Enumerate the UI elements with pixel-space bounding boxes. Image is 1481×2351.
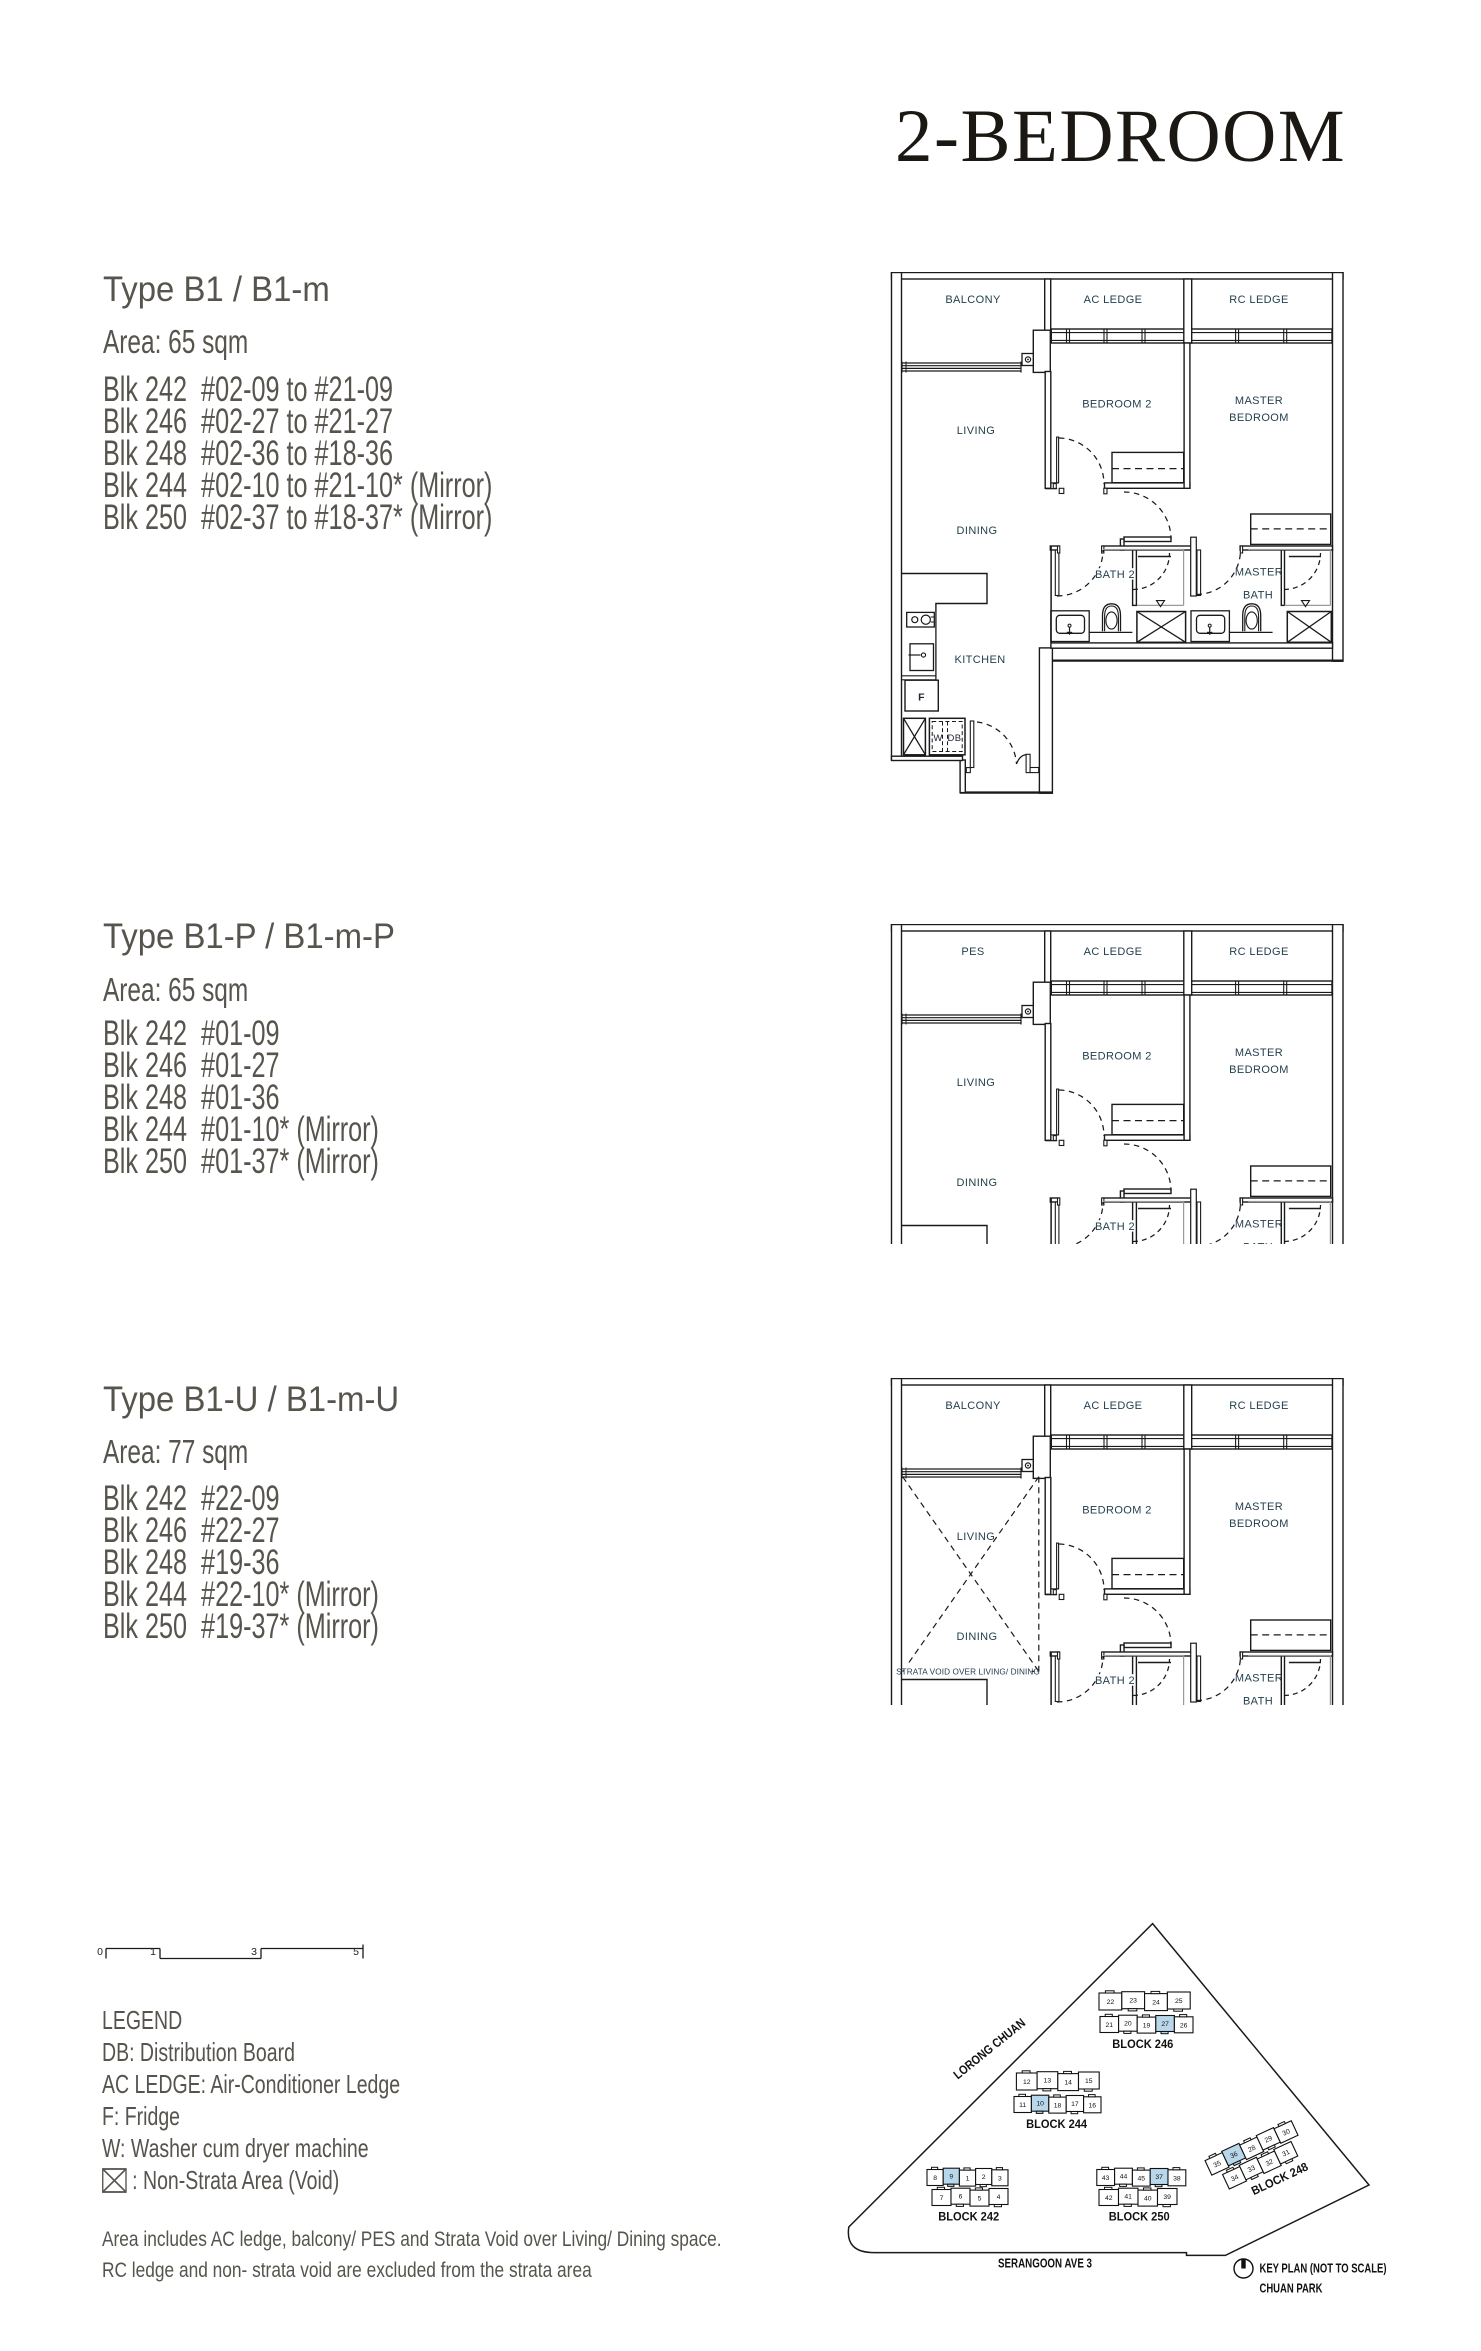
svg-text:3: 3 <box>998 2175 1002 2182</box>
svg-text:38: 38 <box>1173 2175 1181 2182</box>
svg-text:19: 19 <box>1143 2023 1151 2030</box>
svg-text:44: 44 <box>1120 2174 1128 2181</box>
svg-text:13: 13 <box>1044 2078 1052 2085</box>
svg-text:16: 16 <box>1089 2102 1097 2109</box>
svg-text:45: 45 <box>1138 2176 1146 2183</box>
svg-text:CHUAN PARK: CHUAN PARK <box>1260 2282 1323 2296</box>
svg-text:BALCONY: BALCONY <box>945 294 1001 306</box>
svg-text:SERANGOON AVE 3: SERANGOON AVE 3 <box>998 2257 1092 2271</box>
svg-text:7: 7 <box>940 2195 944 2202</box>
svg-text:27: 27 <box>1161 2021 1169 2028</box>
svg-text:1: 1 <box>150 1946 156 1958</box>
svg-text:39: 39 <box>1163 2194 1171 2201</box>
svg-text:5: 5 <box>978 2196 982 2203</box>
svg-text:5: 5 <box>353 1946 359 1958</box>
svg-text:24: 24 <box>1152 2000 1160 2007</box>
svg-text:20: 20 <box>1124 2021 1132 2028</box>
svg-text:2: 2 <box>982 2174 986 2181</box>
svg-text:12: 12 <box>1023 2079 1031 2086</box>
svg-text:6: 6 <box>959 2194 963 2201</box>
svg-text:25: 25 <box>1175 1998 1183 2005</box>
svg-text:1: 1 <box>966 2176 970 2183</box>
svg-text:40: 40 <box>1144 2196 1152 2203</box>
svg-text:BALCONY: BALCONY <box>945 1399 1001 1411</box>
svg-text:10: 10 <box>1036 2101 1044 2108</box>
svg-text:37: 37 <box>1155 2174 1163 2181</box>
svg-text:BLOCK 250: BLOCK 250 <box>1109 2210 1170 2224</box>
svg-text:11: 11 <box>1019 2102 1026 2109</box>
svg-text:LORONG CHUAN: LORONG CHUAN <box>951 2016 1028 2082</box>
svg-text:BLOCK 244: BLOCK 244 <box>1026 2117 1087 2131</box>
svg-text:4: 4 <box>997 2194 1001 2201</box>
svg-text:0: 0 <box>97 1946 103 1958</box>
svg-text:42: 42 <box>1105 2195 1113 2202</box>
svg-text:17: 17 <box>1071 2101 1079 2108</box>
svg-text:15: 15 <box>1085 2078 1093 2085</box>
svg-text:23: 23 <box>1129 1998 1137 2005</box>
svg-text:BLOCK 242: BLOCK 242 <box>938 2210 999 2224</box>
svg-text:22: 22 <box>1107 1999 1115 2006</box>
svg-text:BLOCK 246: BLOCK 246 <box>1112 2037 1173 2051</box>
svg-text:14: 14 <box>1064 2080 1072 2087</box>
svg-text:3: 3 <box>251 1946 257 1958</box>
svg-text:8: 8 <box>933 2175 937 2182</box>
svg-text:KEY PLAN (NOT TO SCALE): KEY PLAN (NOT TO SCALE) <box>1260 2262 1387 2276</box>
svg-text:26: 26 <box>1180 2022 1188 2029</box>
svg-text:43: 43 <box>1102 2175 1110 2182</box>
svg-text:9: 9 <box>949 2174 953 2181</box>
svg-text:18: 18 <box>1054 2103 1062 2110</box>
svg-text:41: 41 <box>1124 2194 1132 2201</box>
svg-text:21: 21 <box>1106 2022 1114 2029</box>
svg-text:PES: PES <box>961 946 984 958</box>
